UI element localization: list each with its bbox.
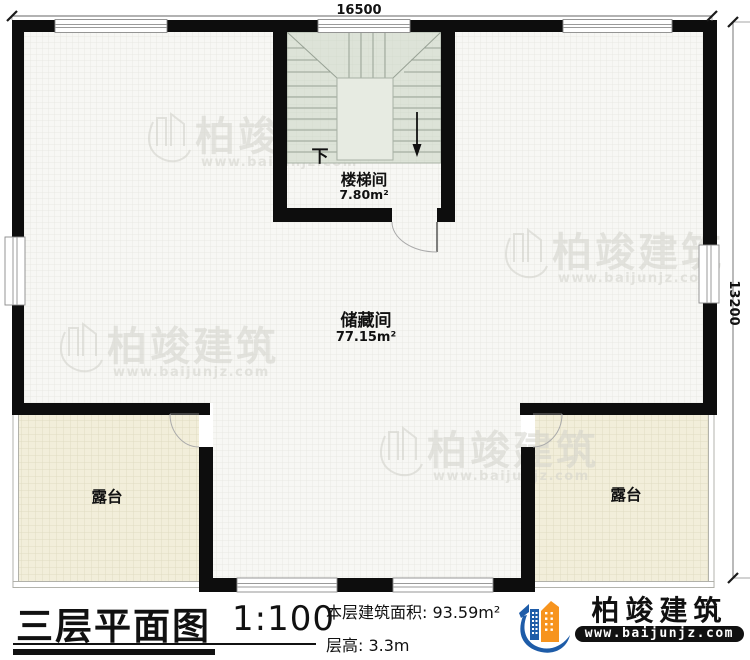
watermark-website: www.baijunjz.com [113, 365, 270, 380]
storage-area: 77.15m² [336, 330, 396, 345]
company-logo: 柏竣建筑 www.baijunjz.com [515, 596, 744, 654]
watermark-website: www.baijunjz.com [433, 469, 590, 484]
drawing-title: 三层平面图 [16, 596, 211, 650]
dimension-right-label: 13200 [726, 280, 741, 325]
title-underline-thin [13, 643, 316, 645]
terrace-left-label: 露台 [91, 487, 122, 506]
window-top-3 [563, 20, 672, 33]
dimension-top-label: 16500 [336, 3, 381, 18]
window-top-1 [55, 20, 167, 33]
floor-plan-drawing: 柏竣建筑 www.baijunjz.com 柏竣建筑 www.baijunjz.… [0, 0, 750, 596]
watermark-company: 柏竣建筑 [107, 324, 279, 370]
watermark-company: 柏竣建筑 [427, 428, 599, 474]
terrace-right-railing-south [521, 582, 714, 588]
terrace-left-railing-south [13, 582, 213, 588]
floor-area-text: 本层建筑面积: 93.59m² [326, 599, 500, 623]
company-name: 柏竣建筑 [591, 596, 727, 626]
terrace-left-railing-west [13, 412, 19, 588]
window-bottom-1 [237, 578, 337, 592]
title-underline-thick [13, 649, 215, 655]
stair-landing [337, 78, 393, 160]
company-website: www.baijunjz.com [575, 626, 744, 642]
title-block: 三层平面图 1:100 本层建筑面积: 93.59m² 层高: 3.3m [0, 596, 750, 660]
window-right [699, 245, 719, 303]
drawing-scale: 1:100 [232, 599, 335, 639]
company-logo-icon [515, 596, 571, 654]
terrace-right-label: 露台 [610, 485, 641, 504]
stairwell-area: 7.80m² [339, 187, 388, 202]
terrace-right-railing-east [709, 412, 715, 588]
watermark-company: 柏竣建筑 [552, 230, 724, 276]
floor-height-text: 层高: 3.3m [326, 632, 410, 656]
storage-label: 储藏间 [341, 310, 392, 331]
window-bottom-2 [393, 578, 493, 592]
window-top-2 [318, 20, 410, 33]
floor-plan-page: 柏竣建筑 www.baijunjz.com 柏竣建筑 www.baijunjz.… [0, 0, 750, 660]
staircase [287, 32, 441, 163]
stair-down-label: 下 [312, 147, 329, 167]
watermark-website: www.baijunjz.com [558, 271, 715, 286]
window-left [5, 237, 25, 305]
